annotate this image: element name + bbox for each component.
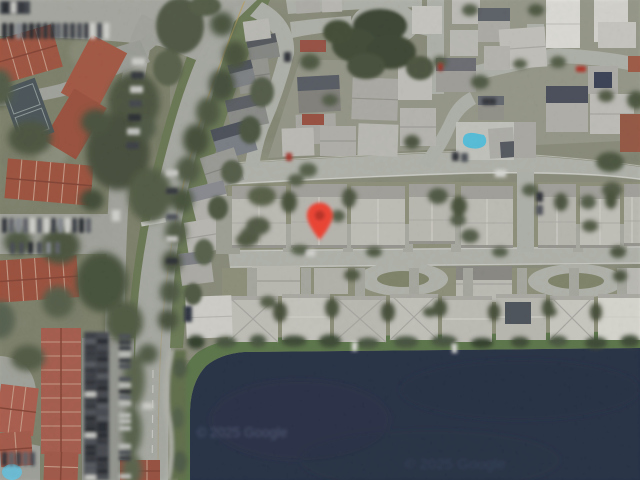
svg-text:© 2025 Google: © 2025 Google xyxy=(404,456,505,473)
svg-text:© 2025 Google: © 2025 Google xyxy=(196,425,287,440)
